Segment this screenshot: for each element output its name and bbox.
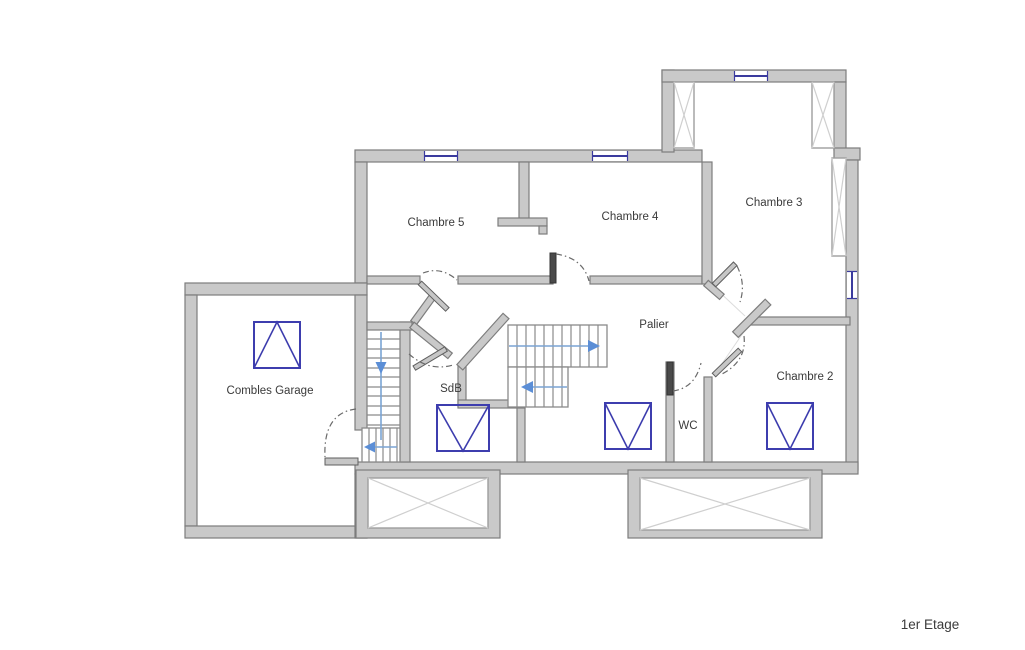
walls <box>185 70 860 538</box>
floor-plan-drawing: Chambre 5 Chambre 4 Chambre 3 Chambre 2 … <box>0 0 1025 650</box>
wall-shaft-boxes <box>674 82 846 256</box>
door-leaf-chambre3 <box>712 262 737 287</box>
room-label-chambre4: Chambre 4 <box>602 211 659 223</box>
room-label-chambre2: Chambre 2 <box>777 371 834 383</box>
window-east-wall <box>847 271 857 299</box>
roof-window-icon-palier <box>605 403 651 449</box>
roof-window-icon-combles-garage <box>254 322 300 368</box>
plan-title: 1er Etage <box>901 617 960 632</box>
stairs-secondary <box>362 332 400 462</box>
door-arc-chambre4 <box>556 254 589 281</box>
door-leaf-chambre4 <box>550 253 556 283</box>
room-label-combles-garage: Combles Garage <box>227 385 314 397</box>
roof-void-right <box>628 470 822 538</box>
room-label-wc: WC <box>678 420 697 432</box>
window-chambre4 <box>592 151 628 161</box>
door-leaf-combles-garage <box>325 458 358 465</box>
room-label-chambre3: Chambre 3 <box>746 197 803 209</box>
room-label-palier: Palier <box>639 319 669 331</box>
roof-window-icon-sdb <box>437 405 489 451</box>
door-leaf-wc <box>667 362 673 395</box>
window-chambre5 <box>424 151 458 161</box>
room-label-chambre5: Chambre 5 <box>408 217 465 229</box>
door-arc-chambre3 <box>737 266 742 302</box>
roof-window-icon-chambre2 <box>767 403 813 449</box>
floor-plan-canvas: Chambre 5 Chambre 4 Chambre 3 Chambre 2 … <box>0 0 1025 650</box>
door-arc-chambre5 <box>423 271 457 280</box>
door-arc-combles-garage <box>325 409 356 457</box>
window-chambre3 <box>734 71 768 81</box>
stairs-main <box>508 325 607 407</box>
room-label-sdb: SdB <box>440 383 462 395</box>
door-arc-wc <box>673 363 701 391</box>
roof-void-left <box>356 470 500 538</box>
